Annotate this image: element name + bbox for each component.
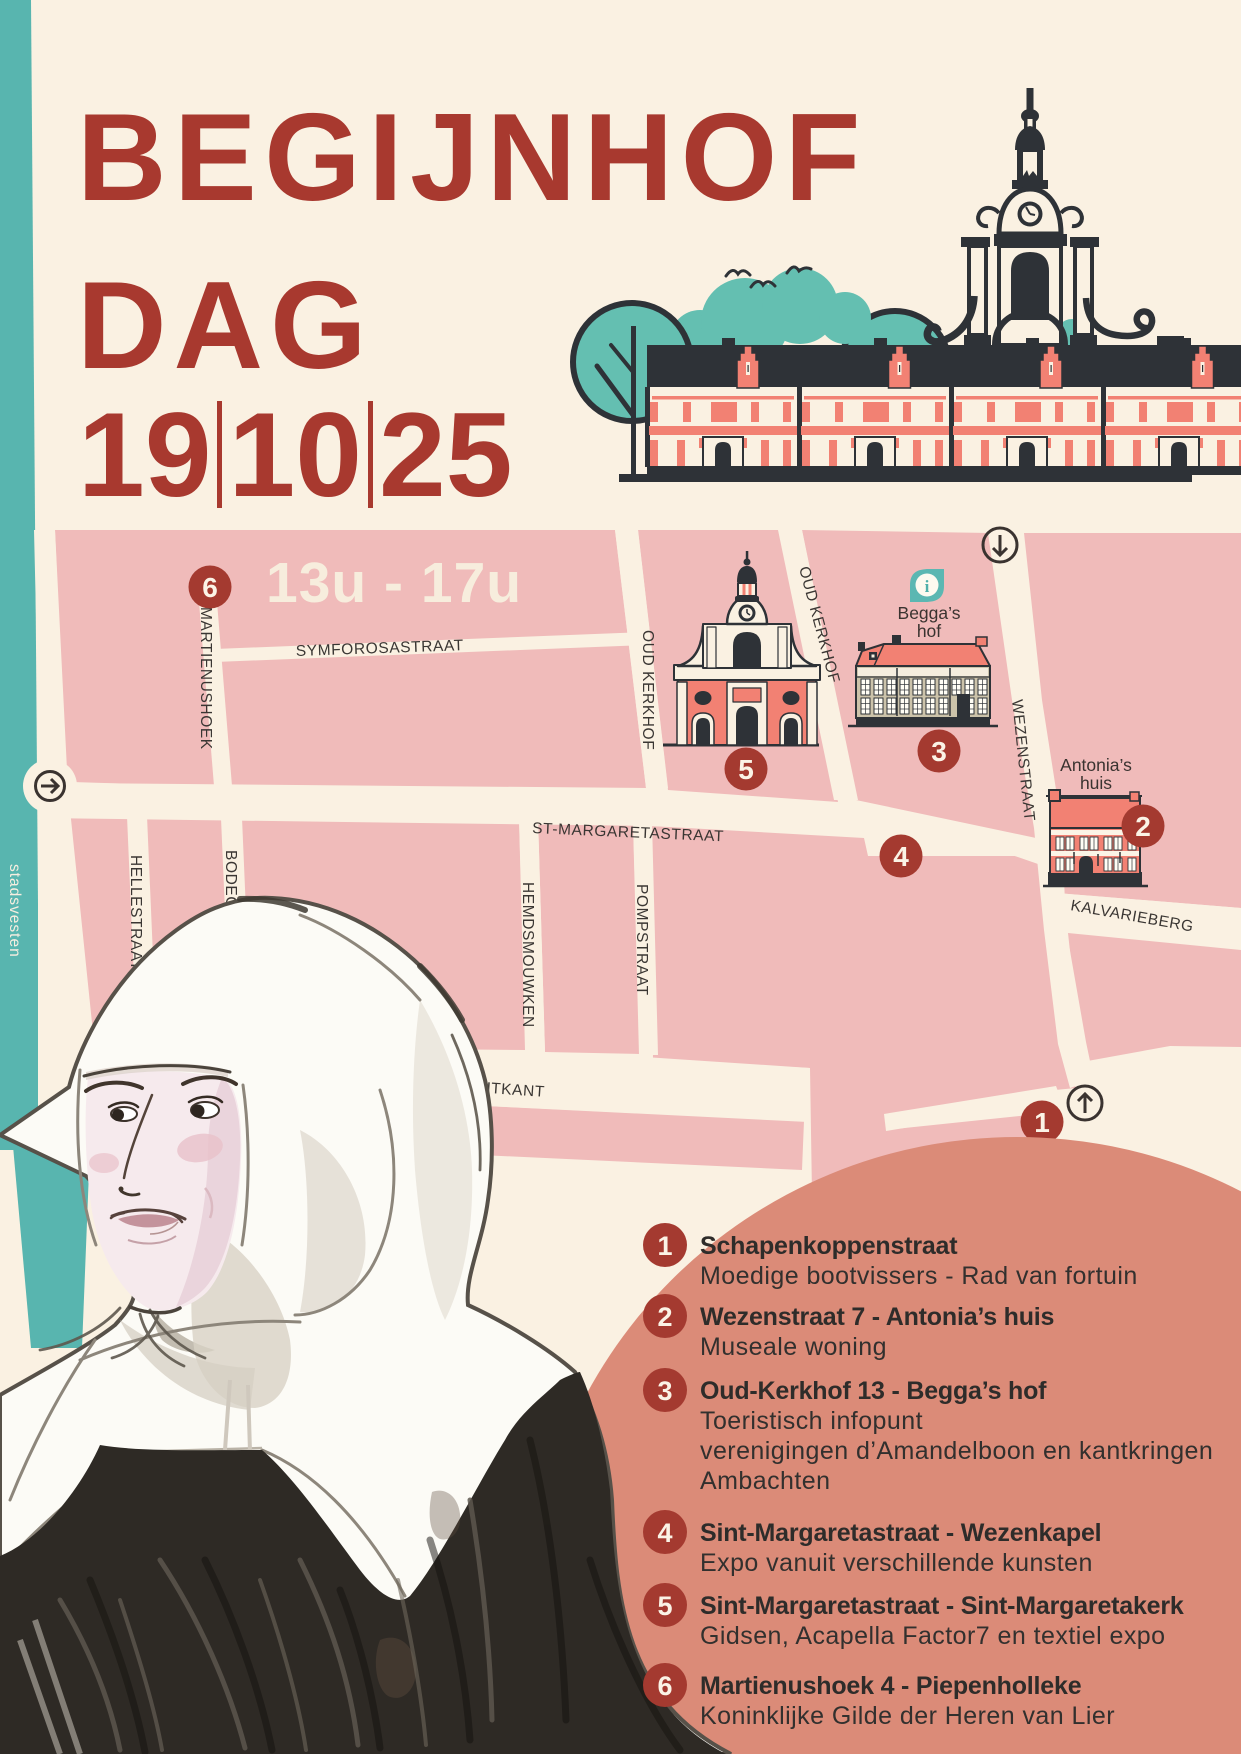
svg-text:6: 6	[657, 1671, 672, 1701]
svg-text:stadsvesten: stadsvesten	[6, 864, 23, 958]
svg-text:Antonia’s: Antonia’s	[1060, 755, 1132, 775]
svg-text:3: 3	[931, 736, 947, 767]
svg-text:OUD KERKHOF: OUD KERKHOF	[639, 630, 656, 750]
svg-text:POMPSTRAAT: POMPSTRAAT	[633, 884, 650, 996]
svg-text:HEMDSMOUWKEN: HEMDSMOUWKEN	[519, 882, 536, 1028]
svg-text:4: 4	[657, 1518, 672, 1548]
svg-text:4: 4	[893, 841, 909, 872]
svg-text:2: 2	[657, 1302, 672, 1332]
svg-text:HELLESTRAAT: HELLESTRAAT	[127, 855, 144, 971]
svg-text:MARTIENUSHOEK: MARTIENUSHOEK	[197, 607, 214, 750]
svg-text:Begga’s: Begga’s	[898, 603, 961, 623]
svg-text:5: 5	[657, 1591, 672, 1621]
svg-text:6: 6	[202, 572, 218, 603]
svg-text:hof: hof	[917, 621, 941, 641]
svg-text:huis: huis	[1080, 773, 1112, 793]
svg-text:1: 1	[1034, 1107, 1050, 1138]
svg-text:1: 1	[657, 1231, 672, 1261]
svg-text:2: 2	[1135, 811, 1151, 842]
svg-text:5: 5	[738, 754, 754, 785]
svg-text:3: 3	[657, 1376, 672, 1406]
svg-text:i: i	[925, 577, 930, 596]
